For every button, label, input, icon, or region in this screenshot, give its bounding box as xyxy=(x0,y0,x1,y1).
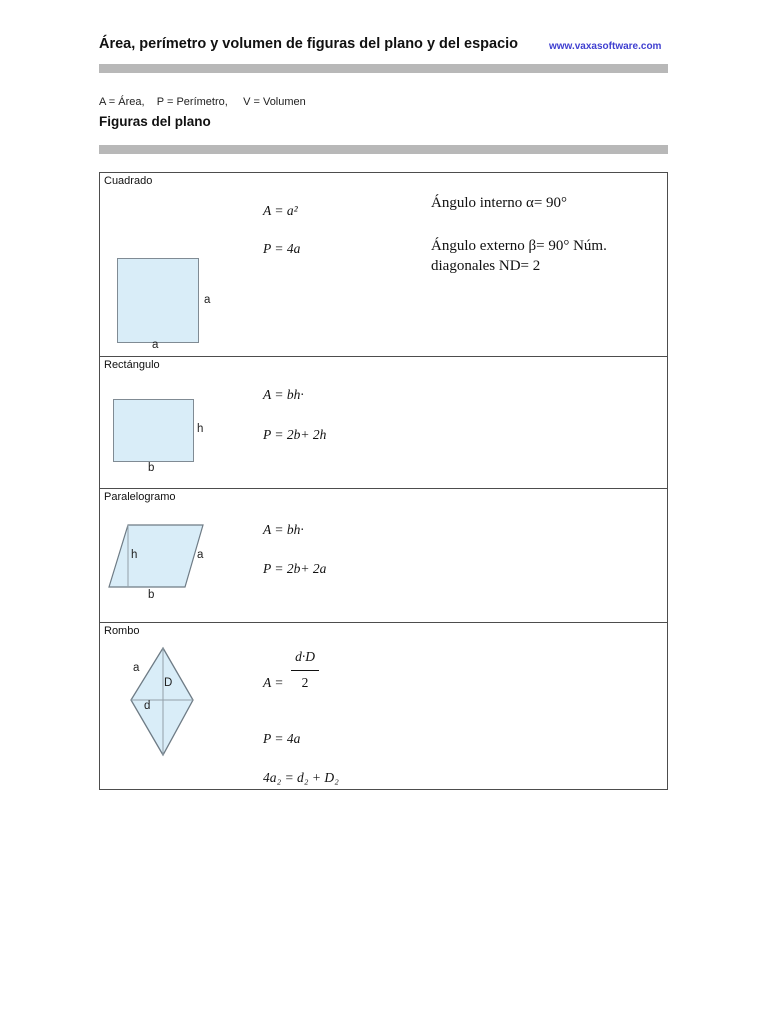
abbreviation-legend: A = Área, P = Perímetro, V = Volumen xyxy=(99,96,306,108)
area-formula: A = bh· xyxy=(263,522,304,538)
figure-name: Rombo xyxy=(104,625,139,637)
fraction-numerator: d·D xyxy=(286,649,324,665)
area-formula-lhs: A = xyxy=(263,675,284,691)
figure-row-rombo: Rombo a D d A = d·D 2 P = 4a 4a₂ = d₂ + … xyxy=(100,622,667,788)
page-title: Área, perímetro y volumen de figuras del… xyxy=(99,36,518,52)
perimeter-formula: P = 2b+ 2a xyxy=(263,561,326,577)
rectangle-base-label: b xyxy=(148,462,154,474)
square-side-label: a xyxy=(204,294,210,306)
rhombus-major-diagonal-label: D xyxy=(164,677,172,689)
document-page: Área, perímetro y volumen de figuras del… xyxy=(0,0,768,1024)
fraction-bar xyxy=(291,670,319,671)
figure-name: Cuadrado xyxy=(104,175,152,187)
rhombus-side-label: a xyxy=(133,662,139,674)
parallelogram-base-label: b xyxy=(148,589,154,601)
figure-row-paralelogramo: Paralelogramo h a b A = bh· P = 2b+ 2a xyxy=(100,488,667,622)
divider-bar-top xyxy=(99,64,668,73)
rhombus-outline xyxy=(131,648,193,755)
fraction-denominator: 2 xyxy=(286,675,324,691)
divider-bar-section xyxy=(99,145,668,154)
perimeter-formula: P = 2b+ 2h xyxy=(263,427,326,443)
parallelogram-side-label: a xyxy=(197,549,203,561)
rectangle-height-label: h xyxy=(197,423,203,435)
parallelogram-height-label: h xyxy=(131,549,137,561)
figure-row-rectangulo: Rectángulo h b A = bh· P = 2b+ 2h xyxy=(100,356,667,488)
figure-name: Paralelogramo xyxy=(104,491,176,503)
area-formula: A = a² xyxy=(263,203,298,219)
perimeter-formula: P = 4a xyxy=(263,731,300,747)
perimeter-formula: P = 4a xyxy=(263,241,300,257)
diagonal-relation-formula: 4a₂ = d₂ + D₂ xyxy=(263,770,339,786)
area-fraction: d·D 2 xyxy=(286,649,324,691)
square-base-label: a xyxy=(152,339,158,351)
area-formula: A = bh· xyxy=(263,387,304,403)
figures-table: Cuadrado a a A = a² P = 4a Ángulo intern… xyxy=(99,172,668,790)
parallelogram-outline xyxy=(109,525,203,587)
figure-name: Rectángulo xyxy=(104,359,160,371)
rhombus-minor-diagonal-label: d xyxy=(144,700,150,712)
internal-angle-note: Ángulo interno α= 90° xyxy=(431,195,567,212)
external-angle-note: Ángulo externo β= 90° Núm. diagonales ND… xyxy=(431,237,673,277)
figure-row-cuadrado: Cuadrado a a A = a² P = 4a Ángulo intern… xyxy=(100,173,667,356)
rhombus-shape xyxy=(125,643,205,761)
rectangle-shape xyxy=(113,399,194,462)
square-shape xyxy=(117,258,199,343)
website-link[interactable]: www.vaxasoftware.com xyxy=(549,41,661,52)
section-heading: Figuras del plano xyxy=(99,114,211,129)
